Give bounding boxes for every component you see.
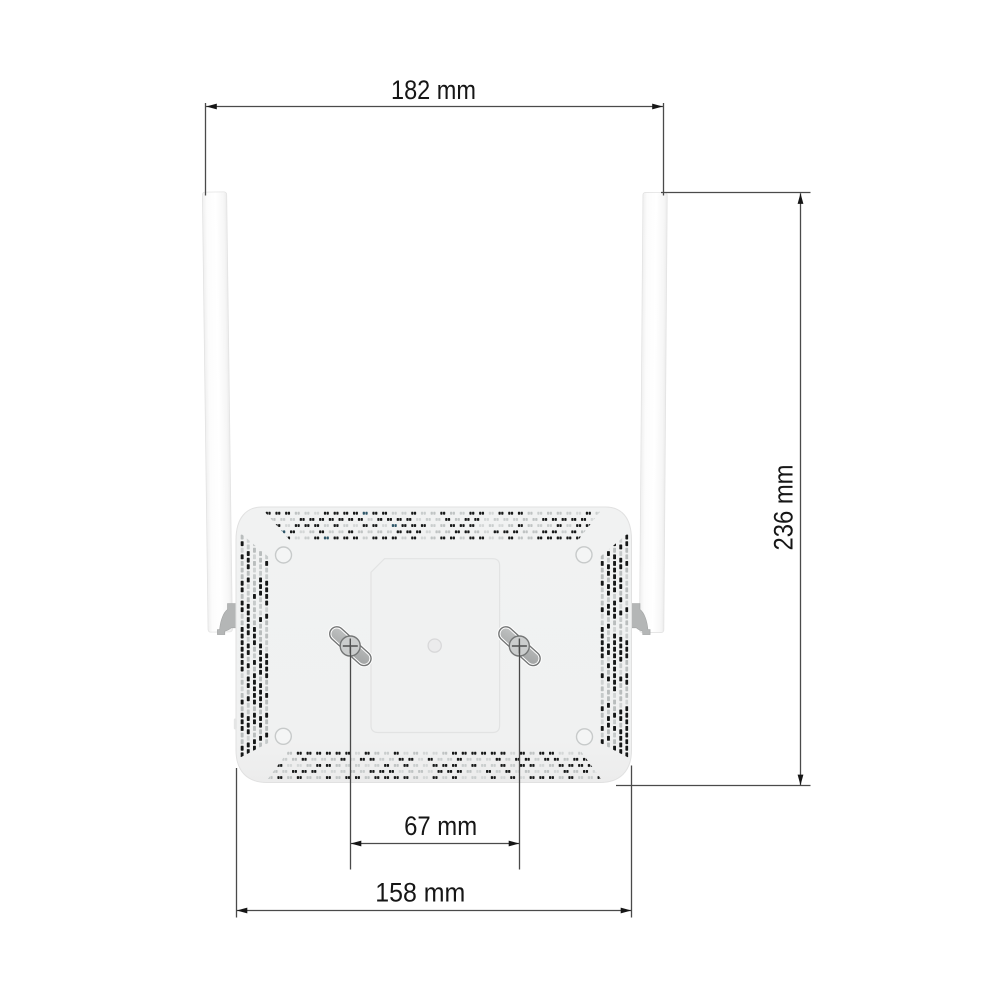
svg-text:236 mm: 236 mm: [769, 465, 799, 551]
svg-text:182 mm: 182 mm: [391, 75, 476, 105]
svg-text:158 mm: 158 mm: [375, 878, 465, 908]
svg-text:67 mm: 67 mm: [404, 811, 477, 841]
